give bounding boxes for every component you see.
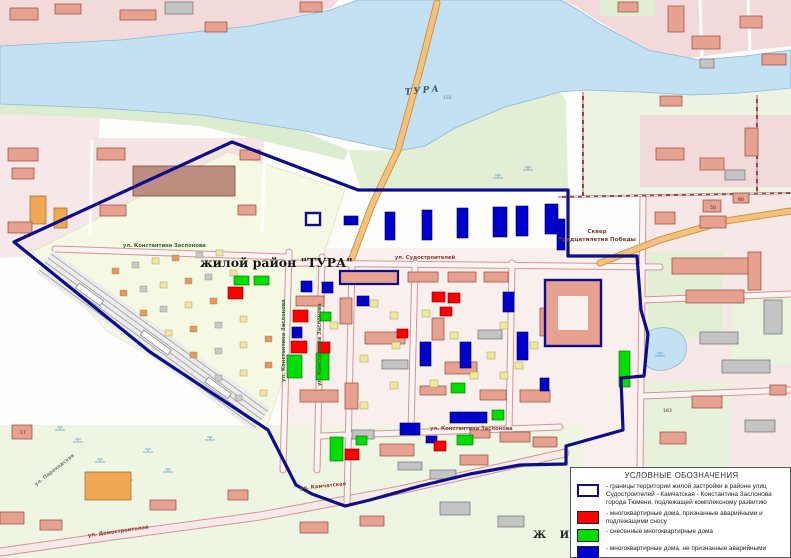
- house-blue: [503, 292, 514, 312]
- building: [533, 437, 557, 447]
- house-green: [287, 355, 302, 378]
- garden-house: [240, 342, 247, 348]
- building: [300, 390, 338, 402]
- house-blue: [493, 207, 507, 237]
- legend-swatch-blue: [577, 546, 599, 558]
- building: [345, 383, 358, 409]
- house-red: [345, 449, 359, 460]
- building: [420, 386, 446, 395]
- building: [745, 128, 758, 156]
- garden-house: [205, 274, 212, 280]
- house-blue: [322, 282, 333, 293]
- garden-house: [160, 282, 167, 288]
- house-blue: [385, 212, 395, 240]
- garden-house: [240, 370, 247, 376]
- legend-item-blue: - многоквартирные дома, не признанные ав…: [577, 545, 786, 558]
- building: [40, 520, 62, 530]
- building: [440, 502, 470, 515]
- building: [770, 385, 786, 395]
- garden-house: [215, 322, 222, 328]
- building: [725, 170, 745, 180]
- legend-item-green: - снесенные многоквартирные дома: [577, 528, 786, 542]
- house-red: [293, 310, 308, 322]
- building: [432, 318, 444, 340]
- house-blue: [460, 342, 471, 368]
- legend-swatch-red: [577, 511, 599, 524]
- house-blue: [400, 423, 420, 435]
- garden-house: [235, 395, 242, 401]
- house-blue: [517, 332, 528, 360]
- building: [228, 490, 248, 500]
- legend-text-boundary: - границы территории жилой застройки в р…: [606, 483, 786, 507]
- garden-house: [132, 262, 139, 268]
- house-red: [434, 441, 446, 451]
- building: [340, 298, 352, 324]
- house-red: [291, 341, 307, 353]
- building: [300, 2, 322, 12]
- house-blue: [457, 208, 468, 238]
- building-number: 183: [663, 408, 672, 414]
- building: [380, 444, 414, 456]
- legend-text-red: - многоквартирные дома, признанные авари…: [606, 510, 786, 526]
- garden-house: [185, 302, 192, 308]
- house-green: [457, 435, 473, 445]
- garden-house: [112, 268, 119, 274]
- building-large: [85, 472, 131, 500]
- house-blue: [357, 296, 369, 306]
- building-number: 90: [738, 197, 744, 203]
- building: [100, 205, 126, 216]
- building: [520, 390, 550, 402]
- garden-house: [215, 348, 222, 354]
- building-number: 17: [20, 430, 26, 436]
- house-blue: [301, 281, 312, 292]
- garden-house: [140, 286, 147, 292]
- building: [764, 300, 782, 334]
- map-canvas: ТУРА 150 жилой район "ТУРА" ул. Констант…: [0, 0, 791, 558]
- house-red: [440, 307, 452, 316]
- building: [97, 148, 125, 160]
- building: [165, 2, 193, 14]
- building: [448, 272, 476, 282]
- building: [8, 148, 38, 161]
- building: [360, 516, 384, 526]
- house-blue: [420, 342, 431, 366]
- building: [30, 196, 46, 224]
- house-blue: [540, 378, 549, 391]
- boundary-marker-square: [306, 213, 320, 225]
- house-blue: [292, 327, 302, 338]
- house-red: [228, 287, 243, 299]
- house-blue: [516, 206, 528, 236]
- building: [8, 222, 32, 233]
- garden-house: [190, 352, 197, 358]
- building: [700, 59, 714, 68]
- house-green: [356, 436, 367, 445]
- garden-house: [152, 258, 159, 264]
- building: [500, 432, 530, 442]
- building: [55, 4, 81, 14]
- garden-house: [230, 270, 237, 276]
- street-label-zaslonova-v1: ул. Константина Заслонова: [281, 299, 287, 382]
- house-blue: [450, 412, 487, 423]
- building: [740, 16, 762, 28]
- building: [498, 516, 524, 527]
- square-label-line1: Сквер: [587, 229, 606, 235]
- building: [408, 272, 438, 282]
- house-green: [330, 437, 343, 461]
- river-note: 150: [443, 95, 452, 101]
- legend-text-blue: - многоквартирные дома, не признанные ав…: [606, 545, 766, 553]
- garden-house: [140, 310, 147, 316]
- house-green: [254, 276, 269, 285]
- building: [12, 168, 34, 179]
- garden-house: [185, 278, 192, 284]
- building: [398, 462, 422, 470]
- road-fill: [509, 263, 512, 430]
- building: [660, 96, 682, 106]
- house-red: [432, 292, 445, 302]
- legend-item-boundary: - границы территории жилой застройки в р…: [577, 483, 786, 507]
- garden-house: [172, 255, 179, 261]
- building: [745, 420, 775, 432]
- garden-house: [260, 390, 267, 396]
- legend: УСЛОВНЫЕ ОБОЗНАЧЕНИЯ - границы территори…: [570, 467, 791, 558]
- building: [656, 148, 684, 160]
- legend-item-red: - многоквартирные дома, признанные авари…: [577, 510, 786, 526]
- house-green: [492, 410, 504, 420]
- garden-house: [190, 326, 197, 332]
- building: [300, 522, 328, 533]
- building: [120, 10, 156, 20]
- garden-house: [240, 316, 247, 322]
- house-green: [451, 383, 465, 393]
- street-label-zaslonova-bottom: ул. Константина Заслонова: [430, 426, 513, 432]
- garden-house: [265, 362, 272, 368]
- district-title: жилой район "ТУРА": [200, 255, 353, 270]
- garden-house: [120, 290, 127, 296]
- building: [692, 36, 720, 49]
- garden-house: [160, 306, 167, 312]
- courtyard: [558, 296, 588, 330]
- building: [748, 252, 761, 290]
- house-blue: [422, 210, 432, 240]
- legend-text-green: - снесенные многоквартирные дома: [606, 528, 713, 536]
- house-red: [397, 329, 408, 338]
- building: [686, 290, 744, 303]
- house-blue: [344, 216, 358, 225]
- building: [150, 500, 176, 510]
- building: [10, 8, 38, 20]
- building: [484, 272, 508, 282]
- house-blue: [545, 204, 558, 234]
- building: [460, 455, 488, 465]
- building: [660, 432, 686, 444]
- street-label-sudostroiteley: ул. Судостроителей: [395, 254, 456, 261]
- building: [700, 332, 738, 344]
- building-outlined: [340, 271, 398, 284]
- building: [700, 216, 726, 228]
- street-label-zaslonova-v2: ул. Константина Заслонова: [317, 303, 323, 386]
- house-blue: [557, 219, 565, 250]
- building: [668, 6, 684, 32]
- building: [238, 205, 256, 215]
- building: [480, 390, 506, 400]
- legend-swatch-green: [577, 529, 599, 542]
- building: [722, 360, 770, 373]
- building: [618, 2, 638, 12]
- building: [700, 158, 724, 170]
- house-red: [448, 293, 460, 303]
- street-label-zaslonova-top: ул. Константина Заслонова: [123, 243, 206, 249]
- square-label-line2: Тридцатилетия Победы: [558, 236, 636, 243]
- building: [478, 330, 502, 339]
- legend-title: УСЛОВНЫЕ ОБОЗНАЧЕНИЯ: [577, 471, 786, 480]
- building: [672, 258, 750, 274]
- building: [762, 54, 786, 65]
- garden-house: [215, 375, 222, 381]
- building: [692, 396, 722, 408]
- house-green: [234, 276, 249, 285]
- garden-house: [165, 330, 172, 336]
- road-fill: [640, 198, 643, 470]
- building: [655, 212, 675, 224]
- building: [0, 512, 24, 524]
- building: [382, 360, 408, 369]
- garden-house: [210, 298, 217, 304]
- legend-swatch-boundary: [577, 484, 599, 497]
- building: [205, 22, 227, 32]
- building-number: 50: [710, 205, 716, 211]
- garden-house: [265, 336, 272, 342]
